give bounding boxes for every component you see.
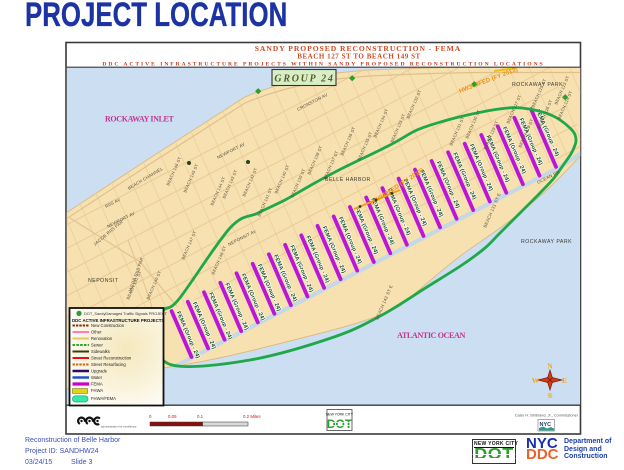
svg-text:NEPONSIT: NEPONSIT — [88, 278, 119, 284]
svg-text:ROCKAWAY INLET: ROCKAWAY INLET — [105, 115, 175, 124]
svg-text:Sewer: Sewer — [91, 343, 103, 348]
svg-text:E: E — [562, 376, 567, 385]
svg-text:DOT_SandyDamaged Traffic Signa: DOT_SandyDamaged Traffic Signals PROJECT — [84, 311, 168, 316]
svg-text:Upgrade: Upgrade — [91, 369, 108, 374]
svg-text:Renovation: Renovation — [91, 336, 113, 341]
svg-text:DOT: DOT — [327, 417, 353, 431]
svg-text:Sidewalks: Sidewalks — [91, 349, 110, 354]
svg-text:New Construction: New Construction — [91, 323, 125, 328]
svg-text:NEW YORK CITY: NEW YORK CITY — [326, 413, 354, 417]
svg-text:DDC ACTIVE INFRASTRUCTURE PROJ: DDC ACTIVE INFRASTRUCTURE PROJECTS WITHI… — [102, 61, 544, 67]
svg-text:BELLE HARBOR: BELLE HARBOR — [325, 177, 371, 183]
svg-text:GROUP 24: GROUP 24 — [274, 74, 334, 85]
svg-text:administration for excellence: administration for excellence — [101, 425, 137, 429]
svg-text:FHWA/FEMA: FHWA/FEMA — [91, 396, 116, 401]
svg-text:ROCKAWAY PARK: ROCKAWAY PARK — [521, 239, 572, 245]
svg-text:FHWA: FHWA — [91, 388, 103, 393]
svg-text:0.2 Miles: 0.2 Miles — [243, 414, 261, 419]
svg-text:ROCKAWAY PARK: ROCKAWAY PARK — [512, 82, 563, 88]
svg-text:Street Resurfacing: Street Resurfacing — [91, 362, 126, 367]
svg-text:NYC: NYC — [540, 422, 552, 428]
svg-text:ATLANTIC OCEAN: ATLANTIC OCEAN — [397, 331, 465, 340]
svg-text:W: W — [532, 376, 540, 385]
svg-text:Other: Other — [91, 330, 102, 335]
svg-text:Cater H. Stribrand, Jr., Commi: Cater H. Stribrand, Jr., Commissioner — [515, 414, 579, 418]
svg-text:Street Reconstruction: Street Reconstruction — [91, 356, 132, 361]
svg-text:N: N — [547, 362, 553, 371]
svg-text:FEMA: FEMA — [91, 382, 103, 387]
svg-text:Water: Water — [91, 375, 103, 380]
svg-text:0.05: 0.05 — [168, 414, 177, 419]
svg-text:0.1: 0.1 — [197, 414, 204, 419]
svg-text:BEACH 127 ST TO BEACH 149 ST: BEACH 127 ST TO BEACH 149 ST — [297, 53, 421, 61]
